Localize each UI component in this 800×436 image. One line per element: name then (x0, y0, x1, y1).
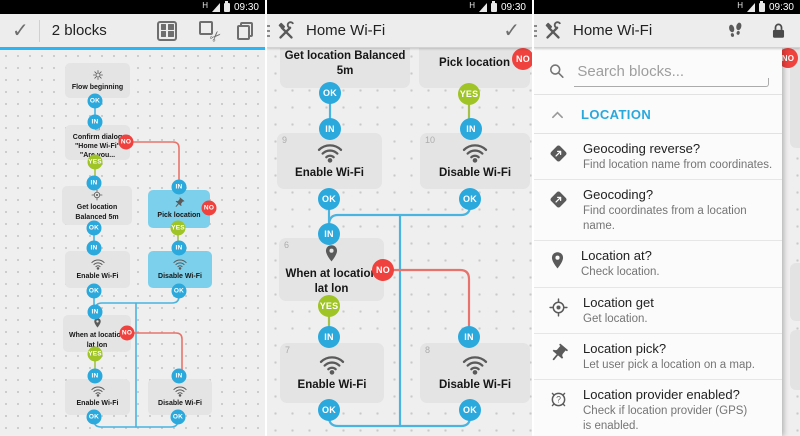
flow-toolbar: Home Wi-Fi (534, 14, 800, 48)
item-title: Location get (583, 295, 654, 310)
list-item-location-pick[interactable]: Location pick? Let user pick a location … (534, 334, 782, 380)
block-get-location[interactable]: Get location Balanced 5m (280, 48, 410, 88)
block-label: Get location Balanced 5m (280, 49, 410, 79)
block-label: Disable Wi-Fi (436, 166, 514, 181)
status-bar: H 09:30 (0, 0, 265, 14)
port-no[interactable]: NO (512, 48, 532, 70)
block-number: 10 (425, 135, 435, 147)
done-selection-button[interactable]: ✓ (12, 21, 29, 41)
block-label: Enable Wi-Fi (292, 166, 367, 181)
battery-icon (491, 3, 497, 12)
selection-toolbar: ✓ 2 blocks ✂ (0, 14, 265, 47)
geocode-icon (548, 189, 569, 210)
network-type-indicator: H (737, 1, 743, 10)
port-in[interactable]: IN (458, 326, 480, 348)
port-ok[interactable]: OK (459, 188, 481, 210)
block-label: Flow beginning (69, 83, 126, 92)
flow-block-fragment (790, 263, 800, 321)
flow-title: Home Wi-Fi (306, 22, 385, 39)
item-desc: Check location. (581, 265, 660, 279)
block-get-location[interactable]: Get location Balanced 5m (62, 186, 132, 225)
port-yes[interactable]: YES (88, 155, 103, 170)
port-no[interactable]: NO (202, 201, 217, 216)
footsteps-icon[interactable] (725, 21, 745, 41)
flow-canvas[interactable]: Flow beginning Confirm dialog "Home Wi-F… (0, 50, 265, 436)
block-label: Enable Wi-Fi (74, 272, 122, 281)
item-desc: Get location. (583, 312, 654, 326)
drawer-handle-icon[interactable] (534, 25, 537, 37)
section-header-location[interactable]: LOCATION (534, 95, 782, 134)
flow-canvas[interactable]: Get location Balanced 5m Pick location 9… (267, 48, 532, 436)
block-label: Disable Wi-Fi (155, 399, 205, 408)
pin-icon (548, 250, 567, 271)
item-title: Geocoding reverse? (583, 141, 772, 156)
block-disable-wifi-selected[interactable]: Disable Wi-Fi (148, 251, 212, 288)
block-picker-drawer: LOCATION Geocoding reverse? Find locatio… (534, 48, 782, 436)
pin-icon (322, 243, 341, 264)
block-when-at-location[interactable]: 6 When at location lat lon (279, 238, 384, 301)
list-item-geocoding-reverse[interactable]: Geocoding reverse? Find location name fr… (534, 134, 782, 180)
port-ok[interactable]: OK (319, 82, 341, 104)
block-label: Pick location (436, 56, 513, 71)
block-disable-wifi[interactable]: 8 Disable Wi-Fi (420, 343, 530, 403)
port-yes[interactable]: YES (458, 83, 480, 105)
item-desc: Check if location provider (GPS) is enab… (583, 404, 753, 433)
port-in[interactable]: IN (172, 180, 187, 195)
tools-icon (275, 20, 297, 42)
port-no[interactable]: NO (120, 326, 135, 341)
item-title: Location provider enabled? (583, 387, 753, 402)
geocode-icon (548, 143, 569, 164)
port-in[interactable]: IN (88, 369, 103, 384)
port-yes[interactable]: YES (88, 347, 103, 362)
target-icon (548, 297, 569, 318)
chevron-up-icon (551, 110, 564, 119)
screen-block-picker: H 09:30 Home Wi-Fi NO LOCATION (534, 0, 800, 436)
block-label: Enable Wi-Fi (74, 399, 122, 408)
port-ok[interactable]: OK (87, 221, 102, 236)
wifi-icon (173, 258, 187, 270)
signal-icon (212, 3, 220, 12)
screen-flow-editor: H 09:30 Home Wi-Fi ✓ Get location Balanc… (267, 0, 532, 436)
block-label: Disable Wi-Fi (155, 272, 205, 281)
network-type-indicator: H (202, 1, 208, 10)
block-number: 9 (282, 135, 287, 147)
get-location-icon (91, 189, 103, 201)
svg-text:?: ? (556, 395, 561, 405)
wifi-icon (317, 142, 343, 163)
port-no[interactable]: NO (372, 259, 394, 281)
item-title: Location pick? (583, 341, 755, 356)
network-type-indicator: H (469, 1, 475, 10)
block-disable-wifi[interactable]: 10 Disable Wi-Fi (420, 133, 530, 189)
wifi-icon (173, 385, 187, 397)
provider-icon: ? (548, 389, 569, 410)
port-ok[interactable]: OK (87, 410, 102, 425)
copy-icon[interactable] (237, 22, 253, 40)
pushpin-icon (171, 195, 188, 212)
port-ok[interactable]: OK (87, 284, 102, 299)
block-enable-wifi[interactable]: Enable Wi-Fi (65, 251, 130, 288)
pushpin-icon (544, 339, 574, 369)
status-time: 09:30 (234, 2, 259, 13)
port-yes[interactable]: YES (171, 221, 186, 236)
block-number: 6 (284, 240, 289, 252)
list-item-location-get[interactable]: Location get Get location. (534, 288, 782, 334)
block-number: 8 (425, 345, 430, 357)
flow-title: Home Wi-Fi (573, 22, 652, 39)
flow-toolbar: Home Wi-Fi ✓ (267, 14, 532, 48)
port-ok[interactable]: OK (318, 399, 340, 421)
signal-icon (479, 3, 487, 12)
flow-block-fragment (790, 330, 800, 390)
list-item-location-at[interactable]: Location at? Check location. (534, 241, 782, 287)
port-in[interactable]: IN (172, 241, 187, 256)
accept-button[interactable]: ✓ (503, 21, 520, 41)
cut-icon[interactable]: ✂ (199, 21, 219, 41)
signal-icon (747, 3, 755, 12)
port-ok[interactable]: OK (171, 410, 186, 425)
battery-icon (759, 3, 765, 12)
item-desc: Let user pick a location on a map. (583, 358, 755, 372)
search-row (534, 48, 782, 95)
list-item-location-provider-enabled[interactable]: ? Location provider enabled? Check if lo… (534, 380, 782, 436)
screen-flow-editor-selection: H 09:30 ✓ 2 blocks ✂ (0, 0, 265, 436)
search-underline (574, 78, 769, 87)
port-in[interactable]: IN (88, 115, 103, 130)
item-desc: Find location name from coordinates. (583, 158, 772, 172)
flow-beginning-icon (92, 69, 104, 81)
tools-icon (542, 20, 564, 42)
block-number: 7 (285, 345, 290, 357)
item-title: Location at? (581, 248, 660, 263)
port-in[interactable]: IN (87, 241, 102, 256)
port-in[interactable]: IN (88, 305, 103, 320)
port-ok[interactable]: OK (459, 399, 481, 421)
block-enable-wifi[interactable]: 9 Enable Wi-Fi (277, 133, 382, 189)
port-in[interactable]: IN (87, 176, 102, 191)
list-item-geocoding[interactable]: Geocoding? Find coordinates from a locat… (534, 180, 782, 241)
wifi-icon (462, 142, 488, 163)
port-in[interactable]: IN (319, 118, 341, 140)
port-no[interactable]: NO (119, 135, 134, 150)
port-in[interactable]: IN (172, 369, 187, 384)
wifi-icon (462, 354, 488, 375)
wifi-icon (91, 258, 105, 270)
flow-connections (0, 50, 265, 436)
block-flow-beginning[interactable]: Flow beginning (65, 63, 130, 98)
item-title: Geocoding? (583, 187, 774, 202)
selection-count: 2 blocks (52, 22, 107, 39)
drawer-handle-icon[interactable] (267, 25, 270, 37)
search-input[interactable] (577, 63, 770, 80)
status-bar: H 09:30 (267, 0, 532, 14)
search-icon (548, 61, 565, 81)
port-ok[interactable]: OK (88, 94, 103, 109)
status-bar: H 09:30 (534, 0, 800, 14)
wifi-icon (319, 354, 345, 375)
block-enable-wifi[interactable]: 7 Enable Wi-Fi (280, 343, 384, 403)
port-in[interactable]: IN (460, 118, 482, 140)
wifi-icon (91, 385, 105, 397)
port-ok[interactable]: OK (172, 284, 187, 299)
block-label: Enable Wi-Fi (295, 378, 370, 393)
toolbar-divider (39, 20, 40, 42)
status-time: 09:30 (501, 2, 526, 13)
battery-icon (224, 3, 230, 12)
select-all-icon[interactable] (157, 21, 177, 41)
flow-canvas-behind: NO LOCATION Geocoding reverse? Find loca… (534, 48, 800, 436)
section-label: LOCATION (581, 107, 651, 122)
block-label: Pick location (154, 211, 203, 220)
port-in[interactable]: IN (318, 326, 340, 348)
item-desc: Find coordinates from a location name. (583, 204, 774, 233)
port-yes[interactable]: YES (318, 295, 340, 317)
block-label: When at location lat lon (279, 267, 384, 297)
lock-icon[interactable] (769, 21, 788, 41)
block-label: Disable Wi-Fi (436, 378, 514, 393)
status-time: 09:30 (769, 2, 794, 13)
block-label: Get location Balanced 5m (62, 203, 132, 221)
port-ok[interactable]: OK (318, 188, 340, 210)
port-in[interactable]: IN (318, 223, 340, 245)
